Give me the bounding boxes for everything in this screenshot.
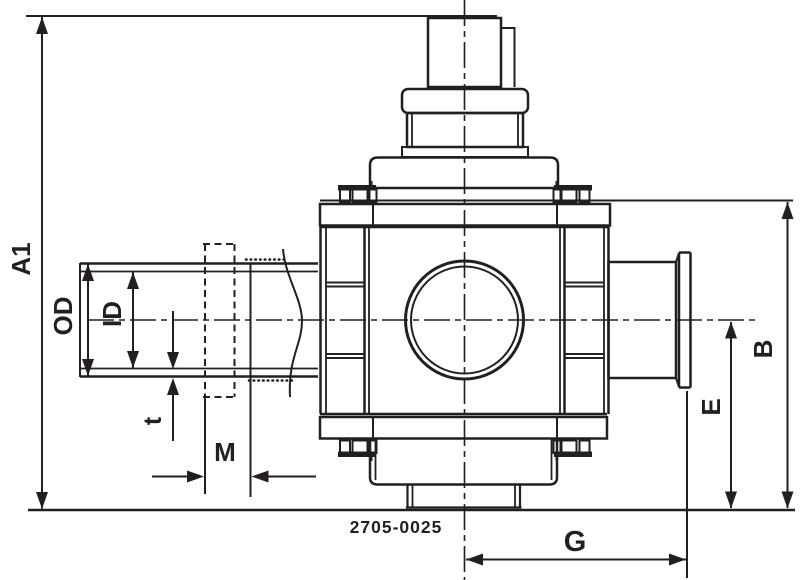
- label-a1: A1: [6, 242, 36, 275]
- bottom-flange-plate: [320, 417, 607, 439]
- sight-glass-drawing: A1 OD ID t: [0, 0, 800, 580]
- bottom-flange: [320, 417, 607, 508]
- label-b: B: [748, 340, 778, 359]
- label-od: OD: [48, 297, 78, 336]
- dimension-od: OD: [48, 264, 94, 376]
- bottom-cap: [370, 439, 557, 485]
- top-bolt-left: [339, 181, 377, 202]
- part-number: 2705-0025: [350, 517, 443, 537]
- label-t: t: [139, 416, 167, 425]
- label-e: E: [696, 398, 726, 415]
- stem-back-edge: [501, 28, 515, 87]
- dimension-e: E: [696, 322, 737, 509]
- label-id: ID: [97, 301, 127, 327]
- label-m: M: [214, 437, 236, 467]
- bottom-bolt-right: [554, 441, 592, 462]
- dimension-id: ID: [97, 272, 139, 368]
- label-g: G: [564, 526, 587, 558]
- technical-drawing-canvas: A1 OD ID t: [0, 0, 800, 580]
- centerlines: [88, 0, 757, 580]
